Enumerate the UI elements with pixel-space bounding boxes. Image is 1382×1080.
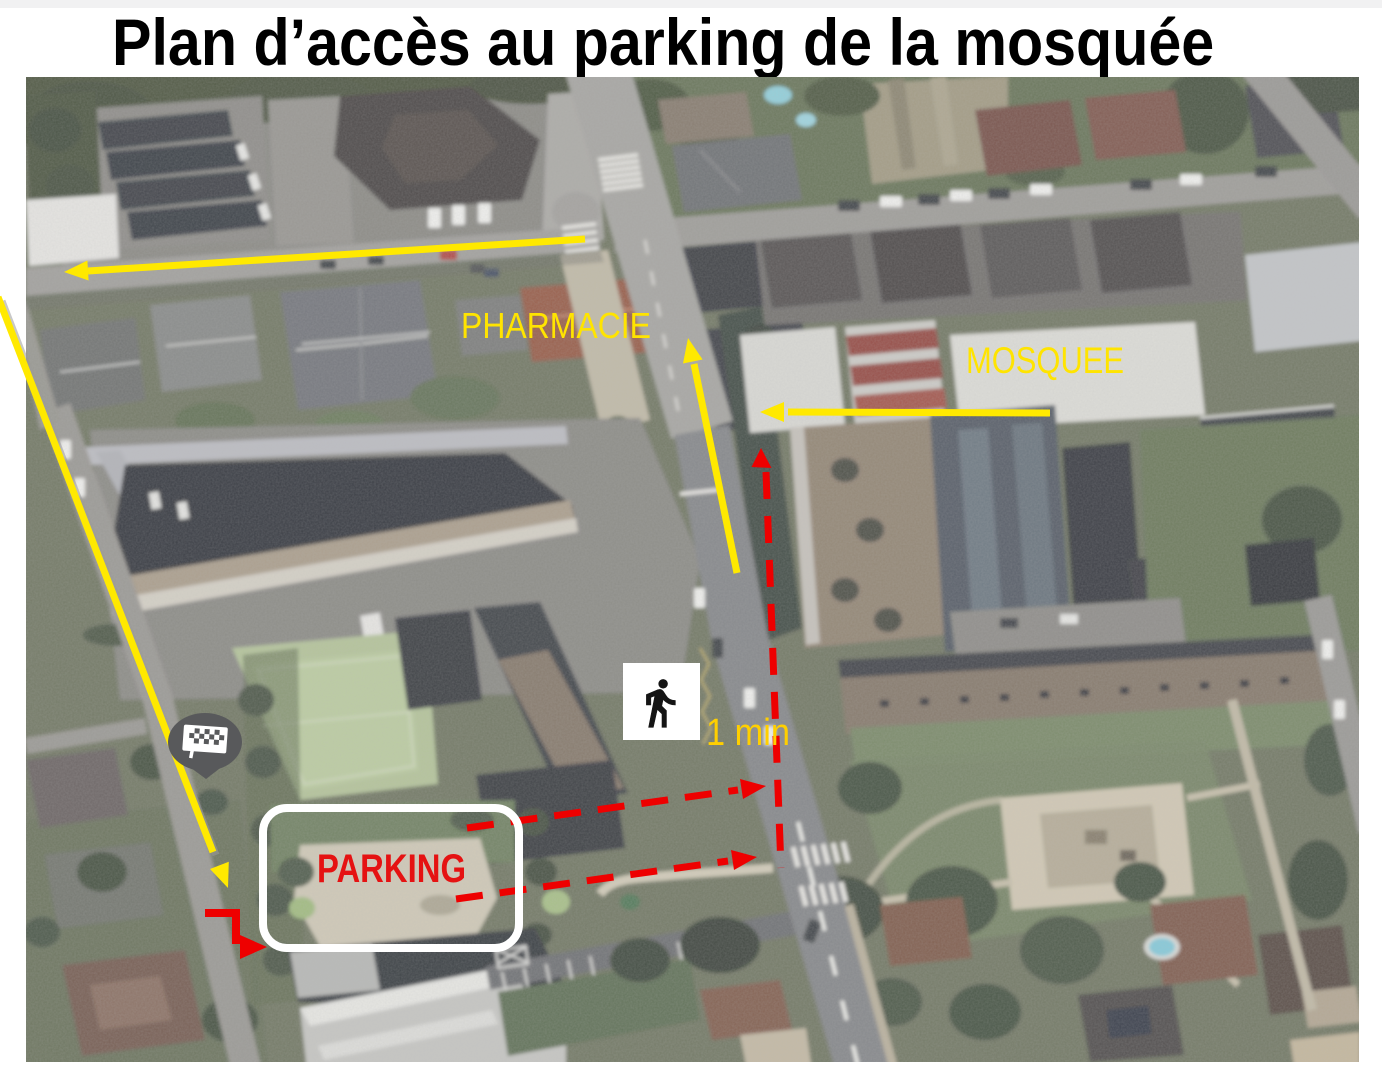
svg-text:1 min: 1 min — [706, 712, 790, 754]
svg-text:PHARMACIE: PHARMACIE — [461, 305, 651, 346]
svg-text:MOSQUEE: MOSQUEE — [966, 340, 1124, 381]
svg-text:PARKING: PARKING — [317, 847, 466, 891]
